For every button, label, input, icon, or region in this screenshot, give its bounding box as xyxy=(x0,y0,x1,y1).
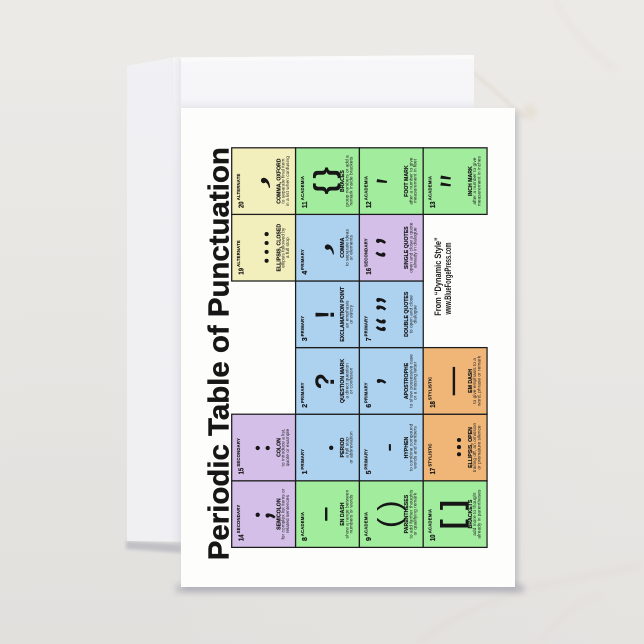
svg-text:ALTERNATE: ALTERNATE xyxy=(236,240,241,267)
svg-text:already in parentheses: already in parentheses xyxy=(476,489,482,539)
svg-text:13: 13 xyxy=(430,201,437,208)
svg-text:12: 12 xyxy=(366,201,373,208)
svg-text:14: 14 xyxy=(238,534,245,541)
svg-text:9: 9 xyxy=(366,537,373,541)
svg-text:[]: [] xyxy=(435,491,469,529)
svg-text:PRIMARY: PRIMARY xyxy=(300,249,305,270)
svg-text:or a missing letter: or a missing letter xyxy=(413,361,419,400)
svg-text:ACADEMIA: ACADEMIA xyxy=(427,509,432,533)
svg-text:a full stop: a full stop xyxy=(285,237,291,258)
svg-text:www.BlueForgePress.com: www.BlueForgePress.com xyxy=(443,243,453,316)
svg-text:ALTERNATE: ALTERNATE xyxy=(236,173,241,200)
svg-text:measurement in inches: measurement in inches xyxy=(476,155,482,206)
svg-text:or elements: or elements xyxy=(349,234,355,260)
svg-text:SECONDARY: SECONDARY xyxy=(236,438,241,467)
svg-text:2: 2 xyxy=(302,404,309,408)
svg-text:or qualifying remark: or qualifying remark xyxy=(413,492,419,535)
svg-text:word, phrase or remark: word, phrase or remark xyxy=(476,355,482,406)
svg-text:PRIMARY: PRIMARY xyxy=(364,382,369,403)
svg-text:4: 4 xyxy=(302,271,309,275)
svg-text:or outcry: or outcry xyxy=(349,304,355,323)
svg-text:PRIMARY: PRIMARY xyxy=(300,382,305,403)
svg-text:1: 1 xyxy=(302,470,309,474)
svg-text:PRIMARY: PRIMARY xyxy=(300,449,305,470)
svg-text:ACADEMIA: ACADEMIA xyxy=(300,176,305,200)
svg-text:PRIMARY: PRIMARY xyxy=(300,316,305,337)
svg-text:STYLISTIC: STYLISTIC xyxy=(427,443,432,466)
svg-text:5: 5 xyxy=(366,470,373,474)
svg-text:3: 3 xyxy=(302,337,309,341)
svg-text:7: 7 xyxy=(366,337,373,341)
svg-text:From “Dynamic Style”: From “Dynamic Style” xyxy=(433,237,443,316)
svg-text:PRIMARY: PRIMARY xyxy=(364,316,369,337)
svg-text:PRIMARY: PRIMARY xyxy=(364,449,369,470)
svg-text:Periodic Table of Punctuation: Periodic Table of Punctuation xyxy=(203,147,235,560)
svg-text:6: 6 xyxy=(366,404,373,408)
svg-text:measurement in feet: measurement in feet xyxy=(413,158,419,203)
svg-text:!: ! xyxy=(310,310,340,319)
svg-text:STYLISTIC: STYLISTIC xyxy=(427,377,432,400)
svg-text:ACADEMIA: ACADEMIA xyxy=(300,512,305,536)
svg-text:in a list when confusing: in a list when confusing xyxy=(285,156,291,206)
svg-text:15: 15 xyxy=(238,468,245,475)
svg-text:quote or example: quote or example xyxy=(285,428,291,466)
svg-text:(): () xyxy=(371,493,406,528)
svg-text:dialogue: dialogue xyxy=(413,305,419,324)
svg-text:SECONDARY: SECONDARY xyxy=(236,505,241,534)
svg-text:{}: {} xyxy=(308,163,341,194)
svg-text:ACADEMIA: ACADEMIA xyxy=(427,176,432,200)
svg-text:20: 20 xyxy=(238,201,245,208)
svg-text:18: 18 xyxy=(430,401,437,408)
svg-text:ACADEMIA: ACADEMIA xyxy=(364,512,369,536)
svg-text:?: ? xyxy=(310,373,340,390)
svg-text:16: 16 xyxy=(366,268,373,275)
svg-text:remark inside brackets: remark inside brackets xyxy=(349,156,355,205)
svg-text:19: 19 xyxy=(238,268,245,275)
svg-text:8: 8 xyxy=(302,537,309,541)
svg-text:already in dialogue: already in dialogue xyxy=(413,227,419,268)
svg-text:words and numbers: words and numbers xyxy=(413,426,419,469)
svg-text:related sentences: related sentences xyxy=(285,494,291,533)
svg-text:17: 17 xyxy=(430,468,437,475)
svg-text:or premature silence: or premature silence xyxy=(476,425,482,469)
svg-text:11: 11 xyxy=(302,201,309,208)
svg-text:or abbreviation: or abbreviation xyxy=(349,431,355,463)
svg-text:or confusion: or confusion xyxy=(349,367,355,394)
svg-text:SECONDARY: SECONDARY xyxy=(364,238,369,267)
svg-text:numbers or words: numbers or words xyxy=(349,494,355,533)
svg-text:10: 10 xyxy=(430,534,437,541)
svg-text:ACADEMIA: ACADEMIA xyxy=(364,176,369,200)
